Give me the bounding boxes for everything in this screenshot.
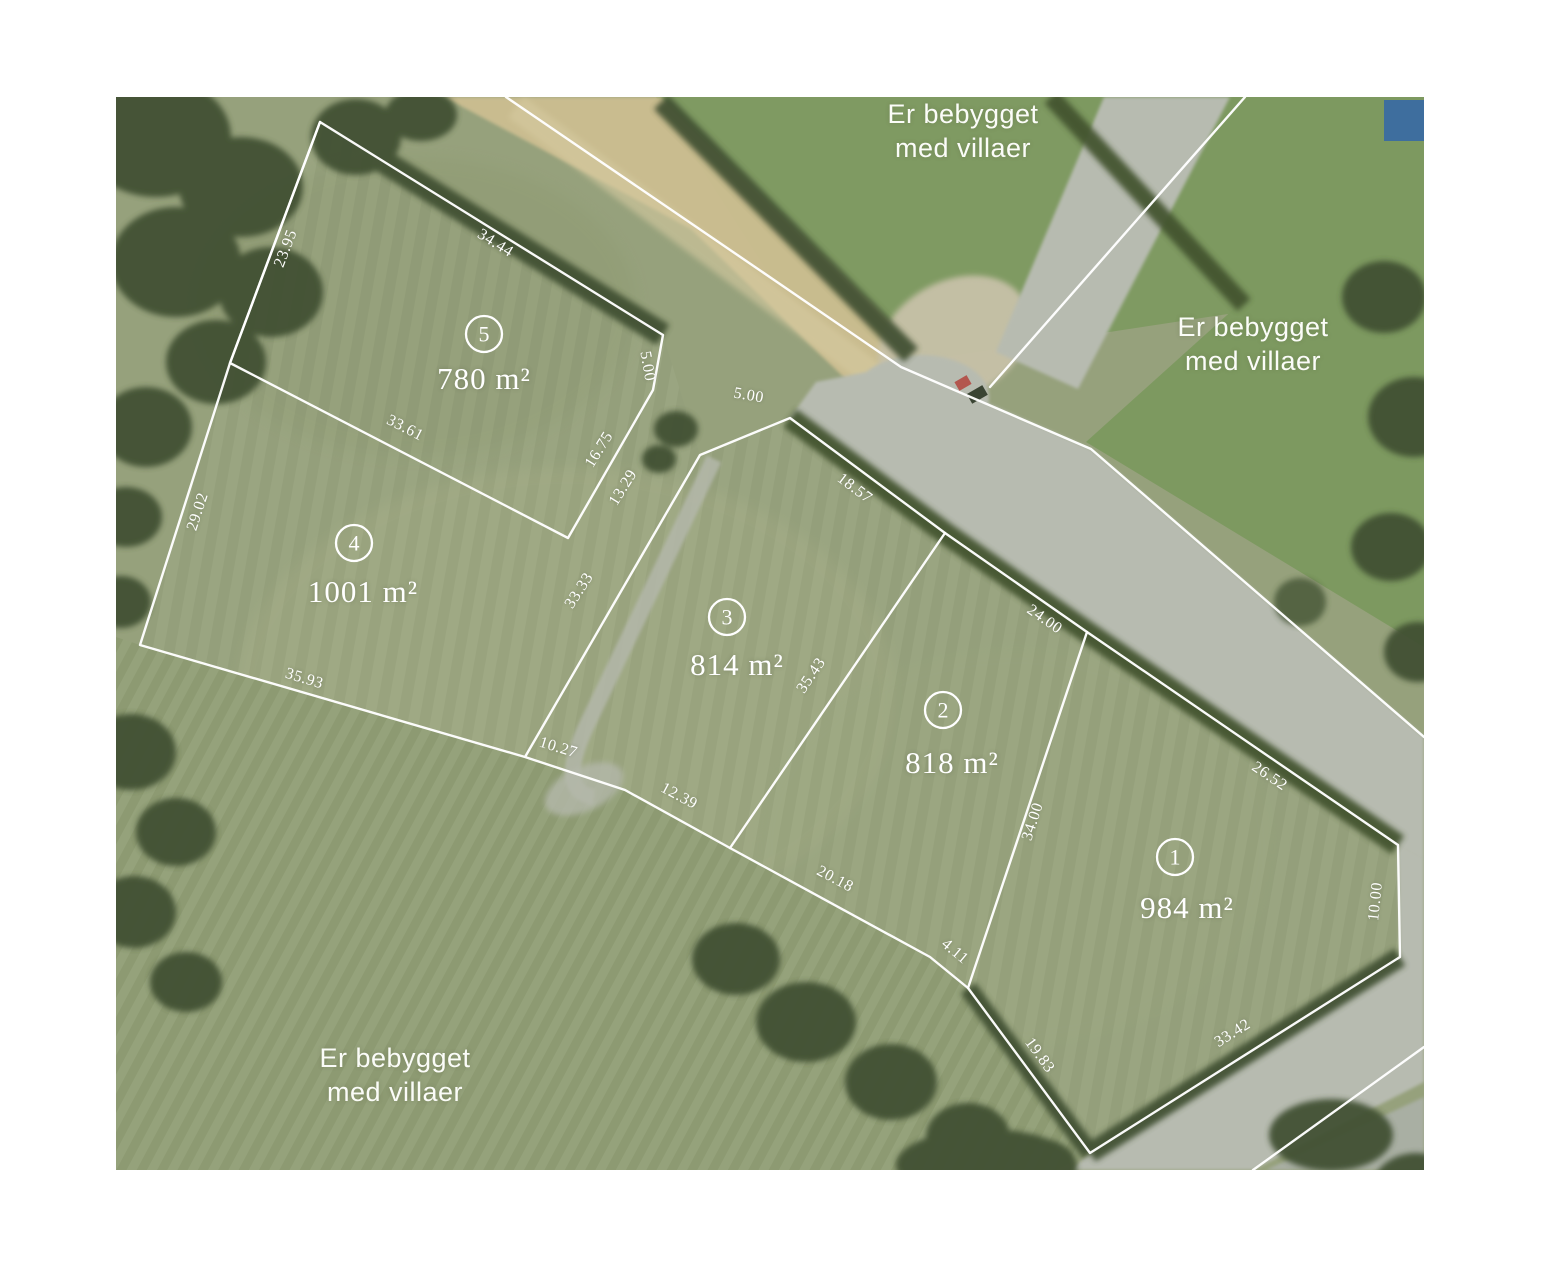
note-line: med villaer <box>1185 346 1321 376</box>
parcel-number: 5 <box>479 322 490 347</box>
parcel-number: 3 <box>722 605 733 630</box>
terrain <box>116 97 1424 1170</box>
parcel-map-svg: 23.9534.4433.6129.025.005.0016.7513.2933… <box>116 97 1424 1170</box>
parcel-area-label: 814 m² <box>690 647 784 682</box>
note-line: Er bebygget <box>319 1043 470 1073</box>
parcel-area-label: 984 m² <box>1140 890 1234 925</box>
aerial-photo: 23.9534.4433.6129.025.005.0016.7513.2933… <box>116 97 1424 1170</box>
note-line: Er bebygget <box>887 99 1038 129</box>
parcel-area-label: 1001 m² <box>308 574 418 609</box>
page: 23.9534.4433.6129.025.005.0016.7513.2933… <box>0 0 1545 1280</box>
note-line: med villaer <box>327 1077 463 1107</box>
parcel-area-label: 780 m² <box>437 361 531 396</box>
parcel-area-label: 818 m² <box>905 745 999 780</box>
blue-corner-marker <box>1384 100 1424 141</box>
parcel-number: 2 <box>938 698 949 723</box>
note-line: Er bebygget <box>1177 312 1328 342</box>
parcel-number: 1 <box>1170 845 1181 870</box>
parcel-number: 4 <box>349 531 360 556</box>
note-line: med villaer <box>895 133 1031 163</box>
